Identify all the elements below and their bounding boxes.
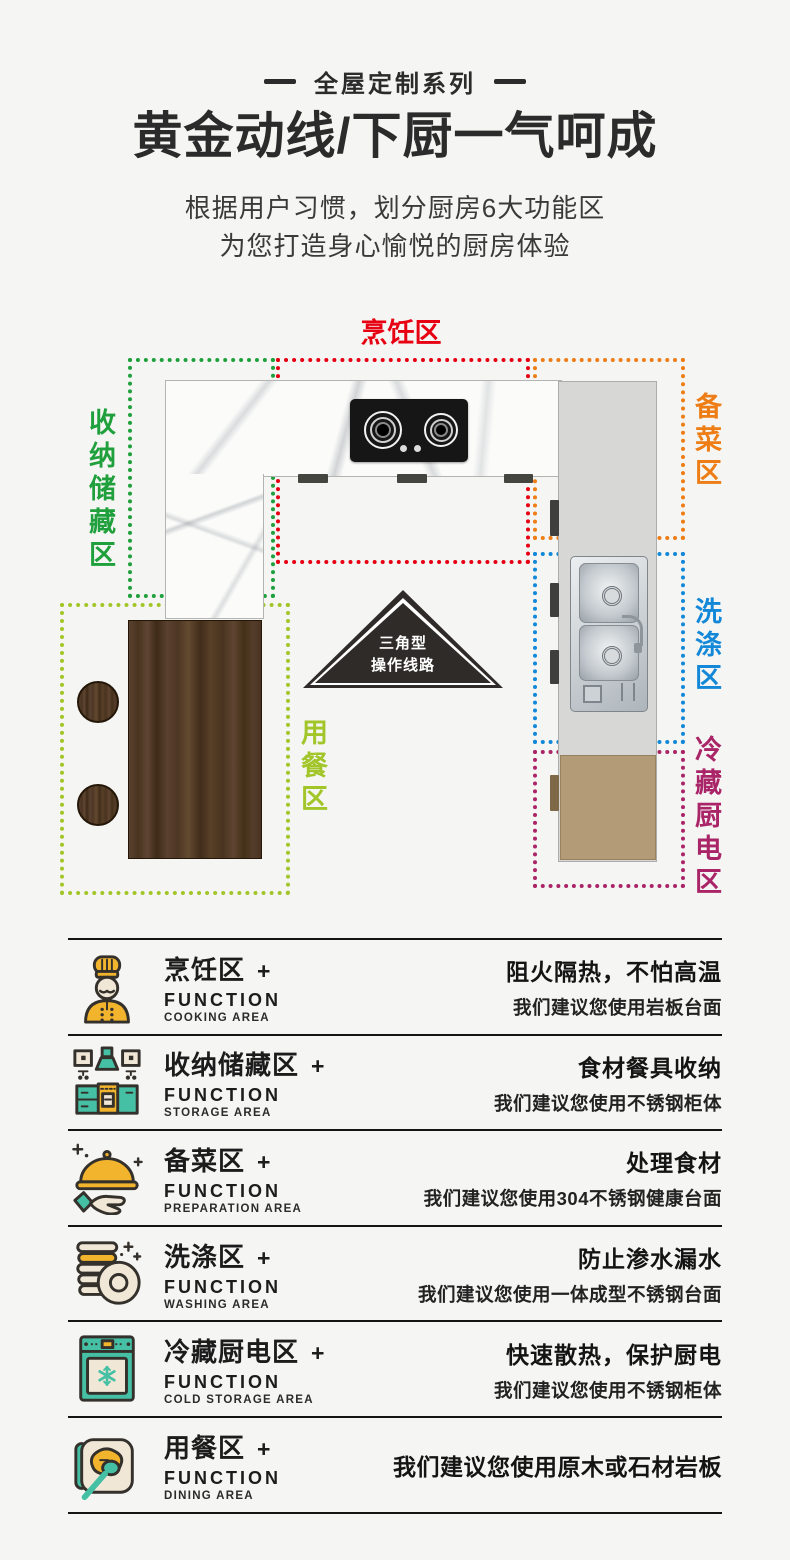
cabinet-handle xyxy=(504,474,533,483)
stove-burner-left xyxy=(364,411,402,449)
function-row-prep: 备菜区 + FUNCTION PREPARATION AREA 处理食材 我们建… xyxy=(68,1129,722,1225)
cabinet-handle xyxy=(550,650,559,684)
function-suggestion: 我们建议您使用不锈钢柜体 xyxy=(494,1090,722,1116)
function-area-en: PREPARATION AREA xyxy=(164,1203,302,1215)
function-area-en: COOKING AREA xyxy=(164,1012,281,1024)
function-benefit: 阻火隔热，不怕高温 xyxy=(506,953,722,987)
plus-mark: + xyxy=(257,1436,270,1463)
function-area-en: COLD STORAGE AREA xyxy=(164,1394,324,1406)
sink-accessory xyxy=(583,685,602,703)
stool xyxy=(77,784,119,826)
function-row-washing: 洗涤区 + FUNCTION WASHING AREA 防止渗水漏水 我们建议您… xyxy=(68,1225,722,1321)
function-title: 冷藏厨电区 xyxy=(164,1332,299,1369)
gas-stove xyxy=(350,399,468,462)
subtitle-line-2: 为您打造身心愉悦的厨房体验 xyxy=(0,226,790,263)
cabinet-icon xyxy=(70,1045,144,1119)
function-row-cooking: 烹饪区 + FUNCTION COOKING AREA 阻火隔热，不怕高温 我们… xyxy=(68,938,722,1034)
function-area-en: WASHING AREA xyxy=(164,1299,281,1311)
plus-mark: + xyxy=(257,958,270,985)
function-label: FUNCTION xyxy=(164,990,281,1011)
function-title: 洗涤区 xyxy=(164,1237,245,1274)
function-area-en: STORAGE AREA xyxy=(164,1107,324,1119)
cold-storage-cabinet xyxy=(560,755,656,860)
function-row-cold: 冷藏厨电区 + FUNCTION COLD STORAGE AREA 快速散热，… xyxy=(68,1320,722,1416)
cabinet-handle xyxy=(550,775,559,811)
double-sink xyxy=(570,556,648,712)
sink-bowl-top xyxy=(579,563,639,623)
function-benefit: 快速散热，保护厨电 xyxy=(494,1336,722,1370)
function-label: FUNCTION xyxy=(164,1372,324,1393)
faucet-icon xyxy=(622,615,643,646)
fridge-icon xyxy=(70,1332,144,1406)
zone-label-cooking: 烹饪区 xyxy=(339,318,463,349)
cabinet-handle xyxy=(550,500,559,536)
function-label: FUNCTION xyxy=(164,1277,281,1298)
faucet-base xyxy=(634,643,642,653)
function-suggestion: 我们建议您使用不锈钢柜体 xyxy=(494,1377,722,1403)
dining-table xyxy=(128,620,262,859)
function-benefit: 防止渗水漏水 xyxy=(418,1240,722,1274)
zone-label-cold: 冷藏厨电区 xyxy=(690,735,721,900)
sink-drain xyxy=(602,586,622,606)
triangle-text-line-1: 三角型 xyxy=(303,632,503,653)
cabinet-handle xyxy=(397,474,427,483)
cloche-icon xyxy=(70,1141,144,1215)
plus-mark: + xyxy=(257,1245,270,1272)
function-suggestion: 我们建议您使用原木或石材岩板 xyxy=(393,1448,722,1482)
cabinet-handle xyxy=(550,583,559,617)
series-label: 全屋定制系列 xyxy=(314,64,476,99)
function-title: 用餐区 xyxy=(164,1428,245,1465)
plus-mark: + xyxy=(311,1340,324,1367)
dash-decoration-left xyxy=(264,79,296,84)
function-title: 备菜区 xyxy=(164,1141,245,1178)
function-area-en: DINING AREA xyxy=(164,1490,281,1502)
function-benefit: 食材餐具收纳 xyxy=(494,1049,722,1083)
cabinet-handle xyxy=(298,474,328,483)
function-list: 烹饪区 + FUNCTION COOKING AREA 阻火隔热，不怕高温 我们… xyxy=(68,938,722,1514)
triangle-route-marker: 三角型 操作线路 xyxy=(303,590,503,688)
function-suggestion: 我们建议您使用304不锈钢健康台面 xyxy=(424,1185,722,1211)
chef-icon xyxy=(70,950,144,1024)
stove-burner-right xyxy=(424,413,458,447)
kitchen-poster: 全屋定制系列 黄金动线/下厨一气呵成 根据用户习惯，划分厨房6大功能区 为您打造… xyxy=(0,0,790,1560)
function-row-storage: 收纳储藏区 + FUNCTION STORAGE AREA 食材餐具收纳 我们建… xyxy=(68,1034,722,1130)
zone-label-storage: 收纳储藏区 xyxy=(84,408,115,573)
zone-label-dining: 用餐区 xyxy=(296,718,327,817)
zone-label-prep: 备菜区 xyxy=(690,392,721,491)
function-suggestion: 我们建议您使用一体成型不锈钢台面 xyxy=(418,1281,722,1307)
triangle-text-line-2: 操作线路 xyxy=(303,654,503,675)
function-title: 烹饪区 xyxy=(164,950,245,987)
stove-knob xyxy=(414,445,421,452)
series-header: 全屋定制系列 xyxy=(0,64,790,99)
function-label: FUNCTION xyxy=(164,1085,324,1106)
function-label: FUNCTION xyxy=(164,1468,281,1489)
dining-icon xyxy=(70,1428,144,1502)
sink-drain xyxy=(602,646,622,666)
subtitle-line-1: 根据用户习惯，划分厨房6大功能区 xyxy=(0,188,790,225)
function-row-dining: 用餐区 + FUNCTION DINING AREA 我们建议您使用原木或石材岩… xyxy=(68,1416,722,1514)
sink-dispenser xyxy=(621,683,635,701)
function-suggestion: 我们建议您使用岩板台面 xyxy=(506,994,722,1020)
stool xyxy=(77,681,119,723)
function-label: FUNCTION xyxy=(164,1181,302,1202)
function-title: 收纳储藏区 xyxy=(164,1045,299,1082)
page-title: 黄金动线/下厨一气呵成 xyxy=(0,96,790,168)
stove-knob xyxy=(400,445,407,452)
plus-mark: + xyxy=(257,1149,270,1176)
plates-icon xyxy=(70,1237,144,1311)
zone-label-washing: 洗涤区 xyxy=(690,597,721,696)
function-benefit: 处理食材 xyxy=(424,1144,722,1178)
countertop-storage-column xyxy=(165,474,264,619)
plus-mark: + xyxy=(311,1053,324,1080)
dash-decoration-right xyxy=(494,79,526,84)
